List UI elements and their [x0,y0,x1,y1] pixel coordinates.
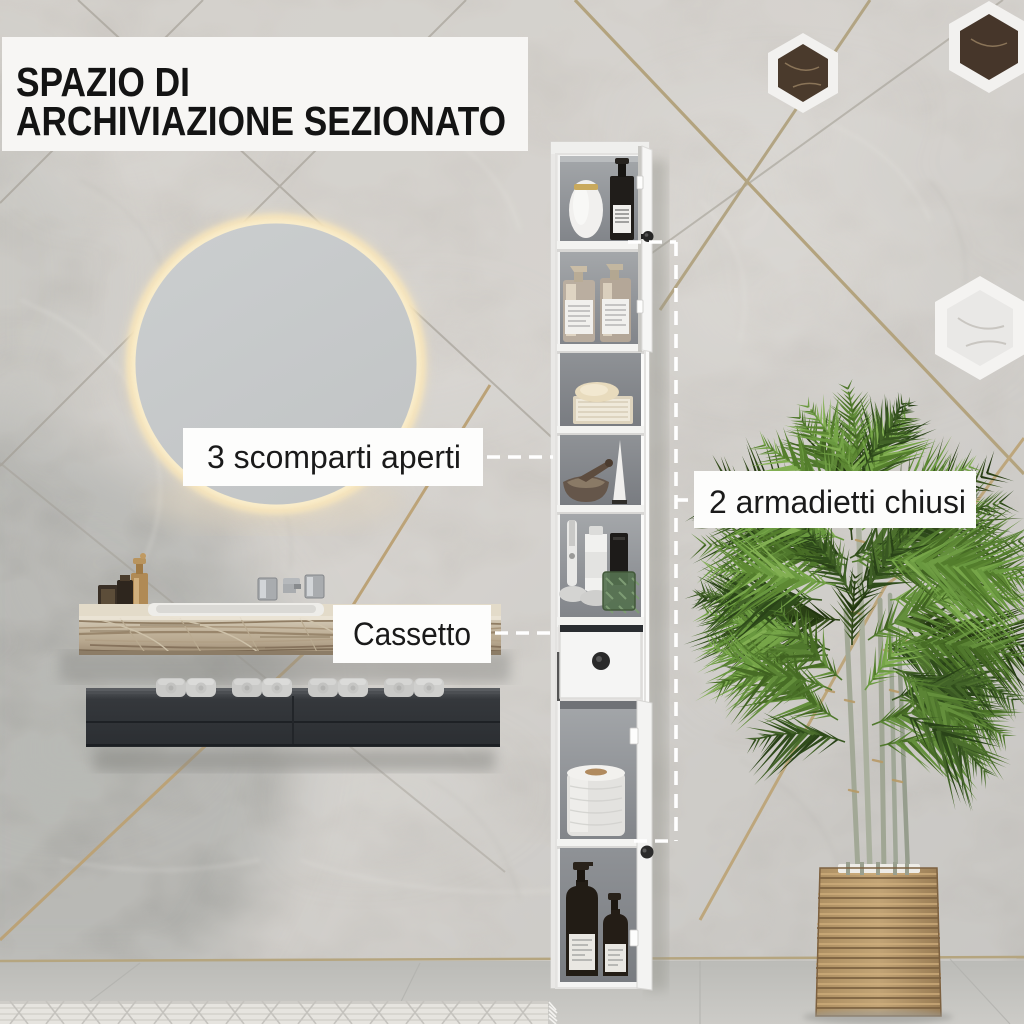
svg-text:2 armadietti chiusi: 2 armadietti chiusi [709,484,966,520]
svg-text:ARCHIVIAZIONE SEZIONATO: ARCHIVIAZIONE SEZIONATO [16,98,506,144]
svg-text:3 scomparti aperti: 3 scomparti aperti [207,439,461,475]
svg-text:Cassetto: Cassetto [353,616,471,652]
